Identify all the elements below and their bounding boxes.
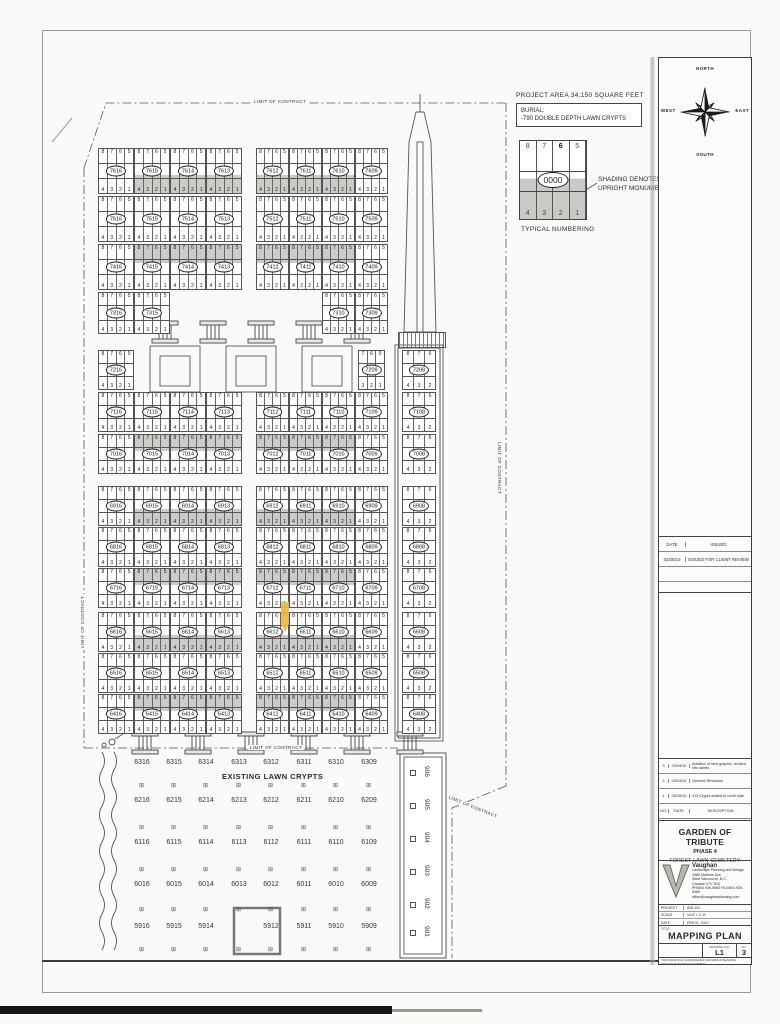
scale-field-value: 1/16" = 1'-0" — [684, 913, 751, 917]
crypt-number-6111: 6111 — [291, 839, 317, 846]
revision-table: 3 03/04/10 Addition of new graphic, revi… — [659, 758, 751, 820]
plot-6909: 847362516909 — [355, 486, 388, 526]
plot-number-7511: 7511 — [296, 214, 316, 225]
typical-cell-1: 1 — [575, 210, 579, 217]
compass: NORTH WEST EAST SOUTH — [659, 66, 751, 170]
plot-6508: 8473626508 — [402, 653, 436, 693]
plot-6709: 847362516709 — [355, 568, 388, 608]
section-marker — [410, 836, 416, 842]
plot-7315: 847362517315 — [134, 292, 170, 334]
crypt-marker: ⊞ — [236, 783, 241, 789]
typical-cell-5: 5 — [575, 143, 579, 150]
plot-7116: 847362517116 — [98, 392, 134, 432]
plot-6514: 847362516514 — [170, 653, 206, 693]
crypt-marker: ⊞ — [366, 867, 371, 873]
plot-number-6411: 6411 — [296, 709, 316, 720]
plot-number-6711: 6711 — [296, 583, 316, 594]
issue-table: DATE ISSUED 02/25/10 ISSUED FOR CLIENT R… — [659, 536, 751, 593]
section-marker — [410, 902, 416, 908]
crypt-marker: ⊞ — [333, 907, 338, 913]
crypt-marker: ⊞ — [301, 947, 306, 953]
compass-east-label: EAST — [735, 108, 749, 113]
plan-bottom-border — [42, 960, 658, 962]
limit-of-contract-label: LIMIT OF CONTRACT — [446, 794, 500, 820]
plot-number-7110: 7110 — [329, 407, 349, 418]
limit-of-contract-label: LIMIT OF CONTRACT — [80, 594, 85, 650]
plot-7611: 847362517611 — [289, 148, 322, 194]
plot-7112: 847362517112 — [256, 392, 289, 432]
plot-6414: 847362516414 — [170, 694, 206, 734]
revision-row: 2 03/04/10 General Revisions — [659, 774, 751, 789]
crypt-marker: ⊞ — [139, 783, 144, 789]
plot-6915: 847362516915 — [134, 486, 170, 526]
limit-of-contract-label: LIMIT OF CONTRACT — [248, 745, 304, 750]
issue-desc: ISSUED FOR CLIENT REVIEW — [686, 557, 751, 562]
crypt-marker: ⊞ — [236, 825, 241, 831]
typical-line — [520, 191, 586, 192]
crypt-marker: ⊞ — [268, 783, 273, 789]
crypt-marker: ⊞ — [366, 783, 371, 789]
typical-plot-oval: 0000 — [538, 172, 569, 188]
crypt-number-6115: 6115 — [161, 839, 187, 846]
plot-7011: 847362517011 — [289, 434, 322, 474]
crypt-marker: ⊞ — [333, 825, 338, 831]
plot-6711: 847362516711 — [289, 568, 322, 608]
crypt-number-5916: 5916 — [129, 923, 155, 930]
typical-numbering-caption: TYPICAL NUMBERING — [521, 226, 594, 233]
plot-number-7115: 7115 — [142, 407, 162, 418]
scale-field-label: SCALE — [659, 913, 684, 917]
crypt-marker: ⊞ — [268, 867, 273, 873]
plot-7316: 847362517316 — [98, 292, 134, 334]
plot-6908: 8473626908 — [402, 486, 436, 526]
plot-number-7112: 7112 — [263, 407, 283, 418]
plot-7510: 847362517510 — [322, 196, 355, 242]
plot-7614: 847362517614 — [170, 148, 206, 194]
plot-number-6811: 6811 — [296, 542, 316, 553]
crypt-marker: ⊞ — [366, 907, 371, 913]
crypt-number-6211: 6211 — [291, 797, 317, 804]
section-marker — [410, 869, 416, 875]
crypt-marker: ⊞ — [171, 947, 176, 953]
plot-7012: 847362517012 — [256, 434, 289, 474]
crypt-number-6315: 6315 — [161, 759, 187, 766]
plot-7514: 847362517514 — [170, 196, 206, 242]
section-marker — [410, 930, 416, 936]
crypt-number-6015: 6015 — [161, 881, 187, 888]
plot-7413: 847362517413 — [206, 244, 242, 290]
plot-7016: 847362517016 — [98, 434, 134, 474]
scan-artifact — [650, 57, 655, 965]
crypt-marker: ⊞ — [171, 867, 176, 873]
limit-of-contract-label: LIMIT OF CONTRACT — [497, 440, 502, 496]
crypt-number-5912: 5912 — [258, 923, 284, 930]
revision-row: 1 03/18/10 213 Crypts added to north sid… — [659, 789, 751, 804]
plot-7108: 8473627108 — [402, 392, 436, 432]
plot-7309: 847362517309 — [355, 292, 388, 334]
section-label-903: 903 — [423, 865, 430, 876]
plot-7109: 847362517109 — [355, 392, 388, 432]
scan-artifact — [392, 1009, 482, 1012]
crypt-number-6011: 6011 — [291, 881, 317, 888]
plot-6911: 847362516911 — [289, 486, 322, 526]
plot-7613: 847362517613 — [206, 148, 242, 194]
plot-7411: 847362517411 — [289, 244, 322, 290]
revision-row: 3 03/04/10 Addition of new graphic, revi… — [659, 759, 751, 774]
plot-7610: 847362517610 — [322, 148, 355, 194]
plot-7409: 847362517409 — [355, 244, 388, 290]
issue-date: 02/25/10 — [659, 557, 686, 562]
crypt-number-6113: 6113 — [226, 839, 252, 846]
drawing-number-section: DRAWING NO. L1 NO. 3 — [659, 943, 751, 957]
crypt-marker: ⊞ — [268, 907, 273, 913]
plot-7511: 847362517511 — [289, 196, 322, 242]
vaughan-logo-icon — [662, 864, 690, 898]
plot-6812: 847362516812 — [256, 527, 289, 567]
project-area-text: PROJECT AREA 34,150 SQUARE FEET — [516, 92, 644, 99]
plot-7113: 847362517113 — [206, 392, 242, 432]
section-marker — [410, 803, 416, 809]
crypt-number-6209: 6209 — [356, 797, 382, 804]
plot-6412: 847362516412 — [256, 694, 289, 734]
burial-note-box: BURIAL: -790 DOUBLE DEPTH LAWN CRYPTS — [516, 103, 642, 127]
issue-row — [659, 567, 751, 582]
plot-7008: 8473627008 — [402, 434, 436, 474]
crypt-marker: ⊞ — [139, 825, 144, 831]
plot-7013: 847362517013 — [206, 434, 242, 474]
typical-numbering-diagram: 84 73 62 51 0000 — [519, 140, 587, 220]
plot-6810: 847362516810 — [322, 527, 355, 567]
crypt-number-6215: 6215 — [161, 797, 187, 804]
crypt-number-6013: 6013 — [226, 881, 252, 888]
crypt-marker: ⊞ — [203, 947, 208, 953]
plot-6815: 847362516815 — [134, 527, 170, 567]
plot-7114: 847362517114 — [170, 392, 206, 432]
plot-6616: 847362516616 — [98, 612, 134, 652]
project-name: GARDEN OF TRIBUTE — [659, 827, 751, 847]
plot-7009: 847362517009 — [355, 434, 388, 474]
plot-number-7611: 7611 — [296, 166, 316, 177]
issue-issued-header: ISSUED — [686, 542, 751, 547]
title-block: NORTH WEST EAST SOUTH DATE ISSUED 02 — [658, 57, 752, 965]
plot-6416: 847362516416 — [98, 694, 134, 734]
crypt-number-6309: 6309 — [356, 759, 382, 766]
plot-6511: 847362516511 — [289, 653, 322, 693]
crypt-number-5911: 5911 — [291, 923, 317, 930]
crypt-number-6214: 6214 — [193, 797, 219, 804]
plot-7216: 847362517216 — [98, 350, 134, 390]
crypt-number-6010: 6010 — [323, 881, 349, 888]
typical-cell-2: 2 — [559, 210, 563, 217]
plot-7513: 847362517513 — [206, 196, 242, 242]
plot-6814: 847362516814 — [170, 527, 206, 567]
plot-7014: 847362517014 — [170, 434, 206, 474]
burial-line2: -790 DOUBLE DEPTH LAWN CRYPTS — [521, 115, 637, 123]
plot-6513: 847362516513 — [206, 653, 242, 693]
crypt-marker: ⊞ — [268, 947, 273, 953]
section-label-906: 906 — [423, 766, 430, 777]
crypt-number-6311: 6311 — [291, 759, 317, 766]
crypt-number-6109: 6109 — [356, 839, 382, 846]
plot-7208: 8473627208 — [402, 350, 436, 390]
crypt-marker: ⊞ — [171, 907, 176, 913]
issue-header-row: DATE ISSUED — [659, 537, 751, 552]
limit-of-contract-label: LIMIT OF CONTRACT — [252, 99, 308, 104]
crypt-marker: ⊞ — [139, 947, 144, 953]
firm-block: Vaughan Landscape Planning and Design 33… — [659, 860, 751, 904]
plot-7612: 847362517612 — [256, 148, 289, 194]
compass-west-label: WEST — [661, 108, 676, 113]
crypt-marker: ⊞ — [333, 783, 338, 789]
crypt-number-6314: 6314 — [193, 759, 219, 766]
plot-6912: 847362516912 — [256, 486, 289, 526]
plot-6512: 847362516512 — [256, 653, 289, 693]
section-label-905: 905 — [423, 799, 430, 810]
project-field-label: PROJECT — [659, 906, 684, 910]
plot-7415: 847362517415 — [134, 244, 170, 290]
crypt-number-5909: 5909 — [356, 923, 382, 930]
plot-number-7113: 7113 — [214, 407, 234, 418]
crypt-marker: ⊞ — [139, 867, 144, 873]
plot-6811: 847362516811 — [289, 527, 322, 567]
plot-6615: 847362516615 — [134, 612, 170, 652]
crypt-marker: ⊞ — [171, 825, 176, 831]
plot-6413: 847362516413 — [206, 694, 242, 734]
plot-6609: 847362516609 — [355, 612, 388, 652]
crypt-number-6112: 6112 — [258, 839, 284, 846]
section-label-901: 901 — [423, 926, 430, 937]
plot-6715: 847362516715 — [134, 568, 170, 608]
section-label-904: 904 — [423, 832, 430, 843]
plot-6409: 847362516409 — [355, 694, 388, 734]
crypt-marker: ⊞ — [366, 947, 371, 953]
plot-6816: 847362516816 — [98, 527, 134, 567]
plot-6408: 8473626408 — [402, 694, 436, 734]
crypt-marker: ⊞ — [366, 825, 371, 831]
plot-6611: 847362516611 — [289, 612, 322, 652]
plot-7310: 847362517310 — [322, 292, 355, 334]
crypt-number-6116: 6116 — [129, 839, 155, 846]
plot-7416: 847362517416 — [98, 244, 134, 290]
crypt-marker: ⊞ — [333, 867, 338, 873]
plot-number-7411: 7411 — [296, 262, 316, 273]
plot-7516: 847362517516 — [98, 196, 134, 242]
crypt-number-6313: 6313 — [226, 759, 252, 766]
crypt-marker: ⊞ — [203, 867, 208, 873]
plot-6913: 847362516913 — [206, 486, 242, 526]
plot-6809: 847362516809 — [355, 527, 388, 567]
plot-6716: 847362516716 — [98, 568, 134, 608]
issue-row: 02/25/10 ISSUED FOR CLIENT REVIEW — [659, 552, 751, 567]
date-field-value: FEB 01, 2010 — [684, 921, 751, 925]
crypt-number-6009: 6009 — [356, 881, 382, 888]
plot-7410: 847362517410 — [322, 244, 355, 290]
crypt-marker: ⊞ — [203, 907, 208, 913]
plot-number-7011: 7011 — [296, 449, 316, 460]
plot-7515: 847362517515 — [134, 196, 170, 242]
compass-rose-icon — [675, 82, 735, 142]
plot-6914: 847362516914 — [170, 486, 206, 526]
plot-6608: 8473626608 — [402, 612, 436, 652]
plot-7110: 847362517110 — [322, 392, 355, 432]
scan-artifact — [0, 1006, 392, 1014]
crypt-number-5910: 5910 — [323, 923, 349, 930]
existing-lawn-crypts-title: EXISTING LAWN CRYPTS — [222, 772, 323, 781]
crypt-number-6212: 6212 — [258, 797, 284, 804]
fields-table: PROJECT A09-101 SCALE 1/16" = 1'-0" DATE… — [659, 904, 751, 925]
plot-7412: 847362517412 — [256, 244, 289, 290]
crypt-marker: ⊞ — [301, 907, 306, 913]
issue-date-header: DATE — [659, 542, 686, 547]
plot-7509: 847362517509 — [355, 196, 388, 242]
plot-6610: 847362516610 — [322, 612, 355, 652]
plot-number-7116: 7116 — [106, 407, 126, 418]
section-marker — [410, 770, 416, 776]
burial-line1: BURIAL: — [521, 107, 637, 115]
section-label-902: 902 — [423, 898, 430, 909]
crypt-marker: ⊞ — [301, 867, 306, 873]
plot-6910: 847362516910 — [322, 486, 355, 526]
crypt-marker: ⊞ — [203, 783, 208, 789]
plot-6710: 847362516710 — [322, 568, 355, 608]
plot-7010: 847362517010 — [322, 434, 355, 474]
crypt-marker: ⊞ — [301, 783, 306, 789]
plot-number-6611: 6611 — [296, 627, 316, 638]
plot-6516: 847362516516 — [98, 653, 134, 693]
crypt-number-6316: 6316 — [129, 759, 155, 766]
compass-north-label: NORTH — [659, 66, 751, 71]
issue-row — [659, 582, 751, 596]
crypt-number-6312: 6312 — [258, 759, 284, 766]
project-title: GARDEN OF TRIBUTE PHASE 4 FOREST LAWN CE… — [659, 820, 751, 860]
crypt-number-6210: 6210 — [323, 797, 349, 804]
plot-6510: 847362516510 — [322, 653, 355, 693]
typical-cell-4: 4 — [526, 210, 530, 217]
plot-7111: 847362517111 — [289, 392, 322, 432]
crypt-number-6016: 6016 — [129, 881, 155, 888]
plot-7609: 847362517609 — [355, 148, 388, 194]
plot-number-6511: 6511 — [296, 668, 316, 679]
compass-south-label: SOUTH — [659, 152, 751, 157]
crypt-marker: ⊞ — [268, 825, 273, 831]
crypt-marker: ⊞ — [236, 947, 241, 953]
plot-6509: 847362516509 — [355, 653, 388, 693]
sheet-title-section: TITLE MAPPING PLAN — [659, 925, 751, 943]
plot-6714: 847362516714 — [170, 568, 206, 608]
crypt-number-6012: 6012 — [258, 881, 284, 888]
plot-6713: 847362516713 — [206, 568, 242, 608]
crypt-number-6213: 6213 — [226, 797, 252, 804]
plot-6813: 847362516813 — [206, 527, 242, 567]
crypt-number-6110: 6110 — [323, 839, 349, 846]
crypt-marker: ⊞ — [301, 825, 306, 831]
plot-6808: 8473626808 — [402, 527, 436, 567]
sheet-no: 3 — [737, 949, 751, 957]
plot-6916: 847362516916 — [98, 486, 134, 526]
crypt-number-5914: 5914 — [193, 923, 219, 930]
plot-6515: 847362516515 — [134, 653, 170, 693]
plot-7616: 847362517616 — [98, 148, 134, 194]
disclaimer: THIS DRAWING SUPERSEDES DRAWINGS BEARING… — [659, 957, 751, 966]
revision-header-row: NO. DATE DESCRIPTION — [659, 804, 751, 819]
plot-7414: 847362517414 — [170, 244, 206, 290]
crypt-marker: ⊞ — [171, 783, 176, 789]
crypt-marker: ⊞ — [203, 825, 208, 831]
plot-7015: 847362517015 — [134, 434, 170, 474]
plot-7209: 7362517209 — [358, 350, 385, 390]
drawing-sheet: 8473625176168473625176158473625176148473… — [0, 0, 780, 1024]
date-field-label: DATE — [659, 921, 684, 925]
typical-cell-6: 6 — [559, 143, 563, 150]
drawing-no: L1 — [703, 949, 736, 957]
plot-6614: 847362516614 — [170, 612, 206, 652]
crypt-marker: ⊞ — [236, 907, 241, 913]
plot-7615: 847362517615 — [134, 148, 170, 194]
crypt-marker: ⊞ — [236, 867, 241, 873]
plot-7512: 847362517512 — [256, 196, 289, 242]
plot-number-6911: 6911 — [296, 501, 316, 512]
project-field-value: A09-101 — [684, 906, 751, 910]
firm-email: office@vaughanplanning.com — [692, 895, 751, 899]
plot-7115: 847362517115 — [134, 392, 170, 432]
typical-cell-7: 7 — [542, 143, 546, 150]
typical-cell-8: 8 — [526, 143, 530, 150]
crypt-number-6014: 6014 — [193, 881, 219, 888]
firm-phone: PH/604 926-0663 FAX/604 926-0465 — [692, 886, 751, 895]
typical-cell-3: 3 — [542, 210, 546, 217]
crypt-marker: ⊞ — [139, 907, 144, 913]
plot-6613: 847362516613 — [206, 612, 242, 652]
crypt-number-6310: 6310 — [323, 759, 349, 766]
crypt-number-5915: 5915 — [161, 923, 187, 930]
plot-6708: 8473626708 — [402, 568, 436, 608]
crypt-number-6216: 6216 — [129, 797, 155, 804]
crypt-marker: ⊞ — [333, 947, 338, 953]
plot-number-7114: 7114 — [178, 407, 198, 418]
plot-6410: 847362516410 — [322, 694, 355, 734]
plot-6415: 847362516415 — [134, 694, 170, 734]
crypt-number-6114: 6114 — [193, 839, 219, 846]
project-phase: PHASE 4 — [659, 849, 751, 855]
sheet-title: MAPPING PLAN — [659, 931, 751, 941]
plot-6411: 847362516411 — [289, 694, 322, 734]
